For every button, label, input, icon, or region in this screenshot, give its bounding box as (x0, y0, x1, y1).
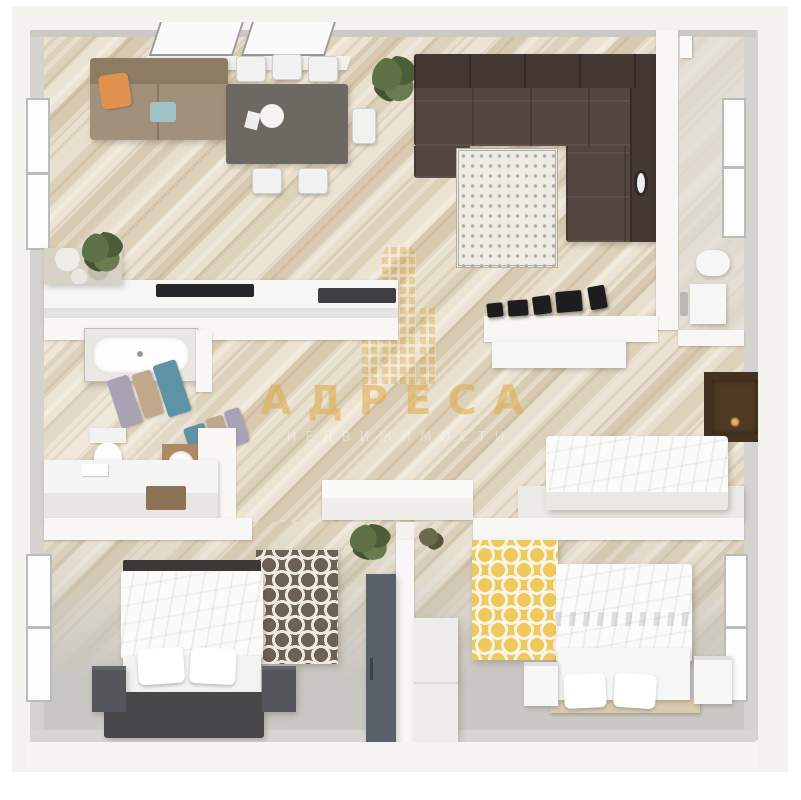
bed-left-duvet (121, 571, 263, 659)
bed-right-fold (556, 612, 692, 626)
outer-wall-left-band (12, 6, 26, 772)
wc-boiler (696, 250, 730, 276)
white-daybed (546, 436, 728, 510)
wc-door-handle (680, 36, 692, 58)
bed-left-bench (104, 692, 264, 738)
teal-pillow (150, 102, 176, 122)
dining-chair (298, 168, 328, 194)
wall-tv-panel (704, 372, 766, 442)
wall-hall-bedrooms-right (473, 518, 744, 540)
window-mullion (28, 626, 50, 629)
wall-bedroom-divider (396, 540, 414, 752)
white-wardrobe (414, 618, 458, 752)
wardrobe-handle (370, 658, 373, 680)
bedroom-left-window (26, 554, 52, 702)
counter-items (82, 464, 108, 476)
bed-left-pillow (189, 647, 237, 685)
bed-right-pillow (563, 673, 607, 709)
cooktop (156, 284, 254, 297)
nightstand-white (524, 662, 558, 706)
outer-wall-right-band (758, 6, 788, 772)
daybed-front-face (546, 492, 728, 510)
wc-vanity-cabinet (690, 284, 726, 324)
loveseat-sofa (90, 58, 228, 140)
toilet-tank (90, 428, 126, 443)
dining-chair (308, 56, 338, 82)
outer-wall-bottom-band (12, 742, 788, 772)
divider-plant-small (418, 528, 444, 550)
plate (260, 104, 284, 128)
wc-faucet (680, 292, 688, 316)
orange-pillow (98, 72, 132, 110)
bed-right-pillow (613, 673, 657, 710)
sideboard-cabinet (492, 342, 626, 368)
window-mullion (726, 626, 746, 629)
watermark-subtitle-text: НЕДВИЖИМОСТИ (240, 430, 560, 445)
counter-dark-slab (318, 288, 396, 303)
nightstand-dark (92, 666, 126, 712)
speaker (486, 302, 503, 318)
divider-plant (350, 524, 392, 560)
building-icon-side2 (420, 308, 436, 384)
counter-plant (82, 232, 124, 272)
floorplan-render: АДРЕСА НЕДВИЖИМОСТИ (0, 0, 801, 800)
speaker (555, 290, 583, 313)
nightstand-white (694, 656, 732, 704)
wall-hall-bedrooms-left (44, 518, 252, 540)
living-area-rug (456, 148, 558, 268)
wall-clock (634, 170, 648, 196)
dining-chair (272, 54, 302, 80)
tv-panel-glow (730, 416, 740, 428)
brown-mat (146, 486, 186, 510)
outer-wall-top-band (12, 6, 788, 22)
dining-chair (236, 56, 266, 82)
window-mullion (724, 166, 744, 169)
speaker (532, 295, 552, 315)
tv-console-ledge (484, 316, 658, 342)
corner-sofa-back-top (414, 54, 660, 88)
watermark-brand-text: АДРЕСА (240, 378, 560, 424)
slate-wardrobe (366, 574, 396, 752)
bathroom-counter (44, 460, 218, 520)
plant (372, 56, 418, 102)
bed-left-pillow (137, 646, 185, 685)
wall-living-wc (656, 30, 678, 330)
dining-chair (252, 168, 282, 194)
speaker (507, 299, 528, 316)
wall-wc-bottom (678, 330, 744, 346)
closet-unit (322, 480, 473, 520)
wall-bath-right (196, 330, 212, 392)
napkin (244, 111, 261, 131)
dining-table (226, 84, 348, 164)
yellow-honeycomb-rug (472, 540, 558, 660)
bathtub-drain (137, 351, 143, 357)
dining-chair (352, 108, 376, 144)
brown-honeycomb-rug (256, 550, 338, 664)
window-mullion (28, 172, 48, 175)
wardrobe-seam (414, 682, 458, 684)
wc-window (722, 98, 746, 238)
nightstand-dark (262, 666, 296, 712)
living-window (26, 98, 50, 250)
